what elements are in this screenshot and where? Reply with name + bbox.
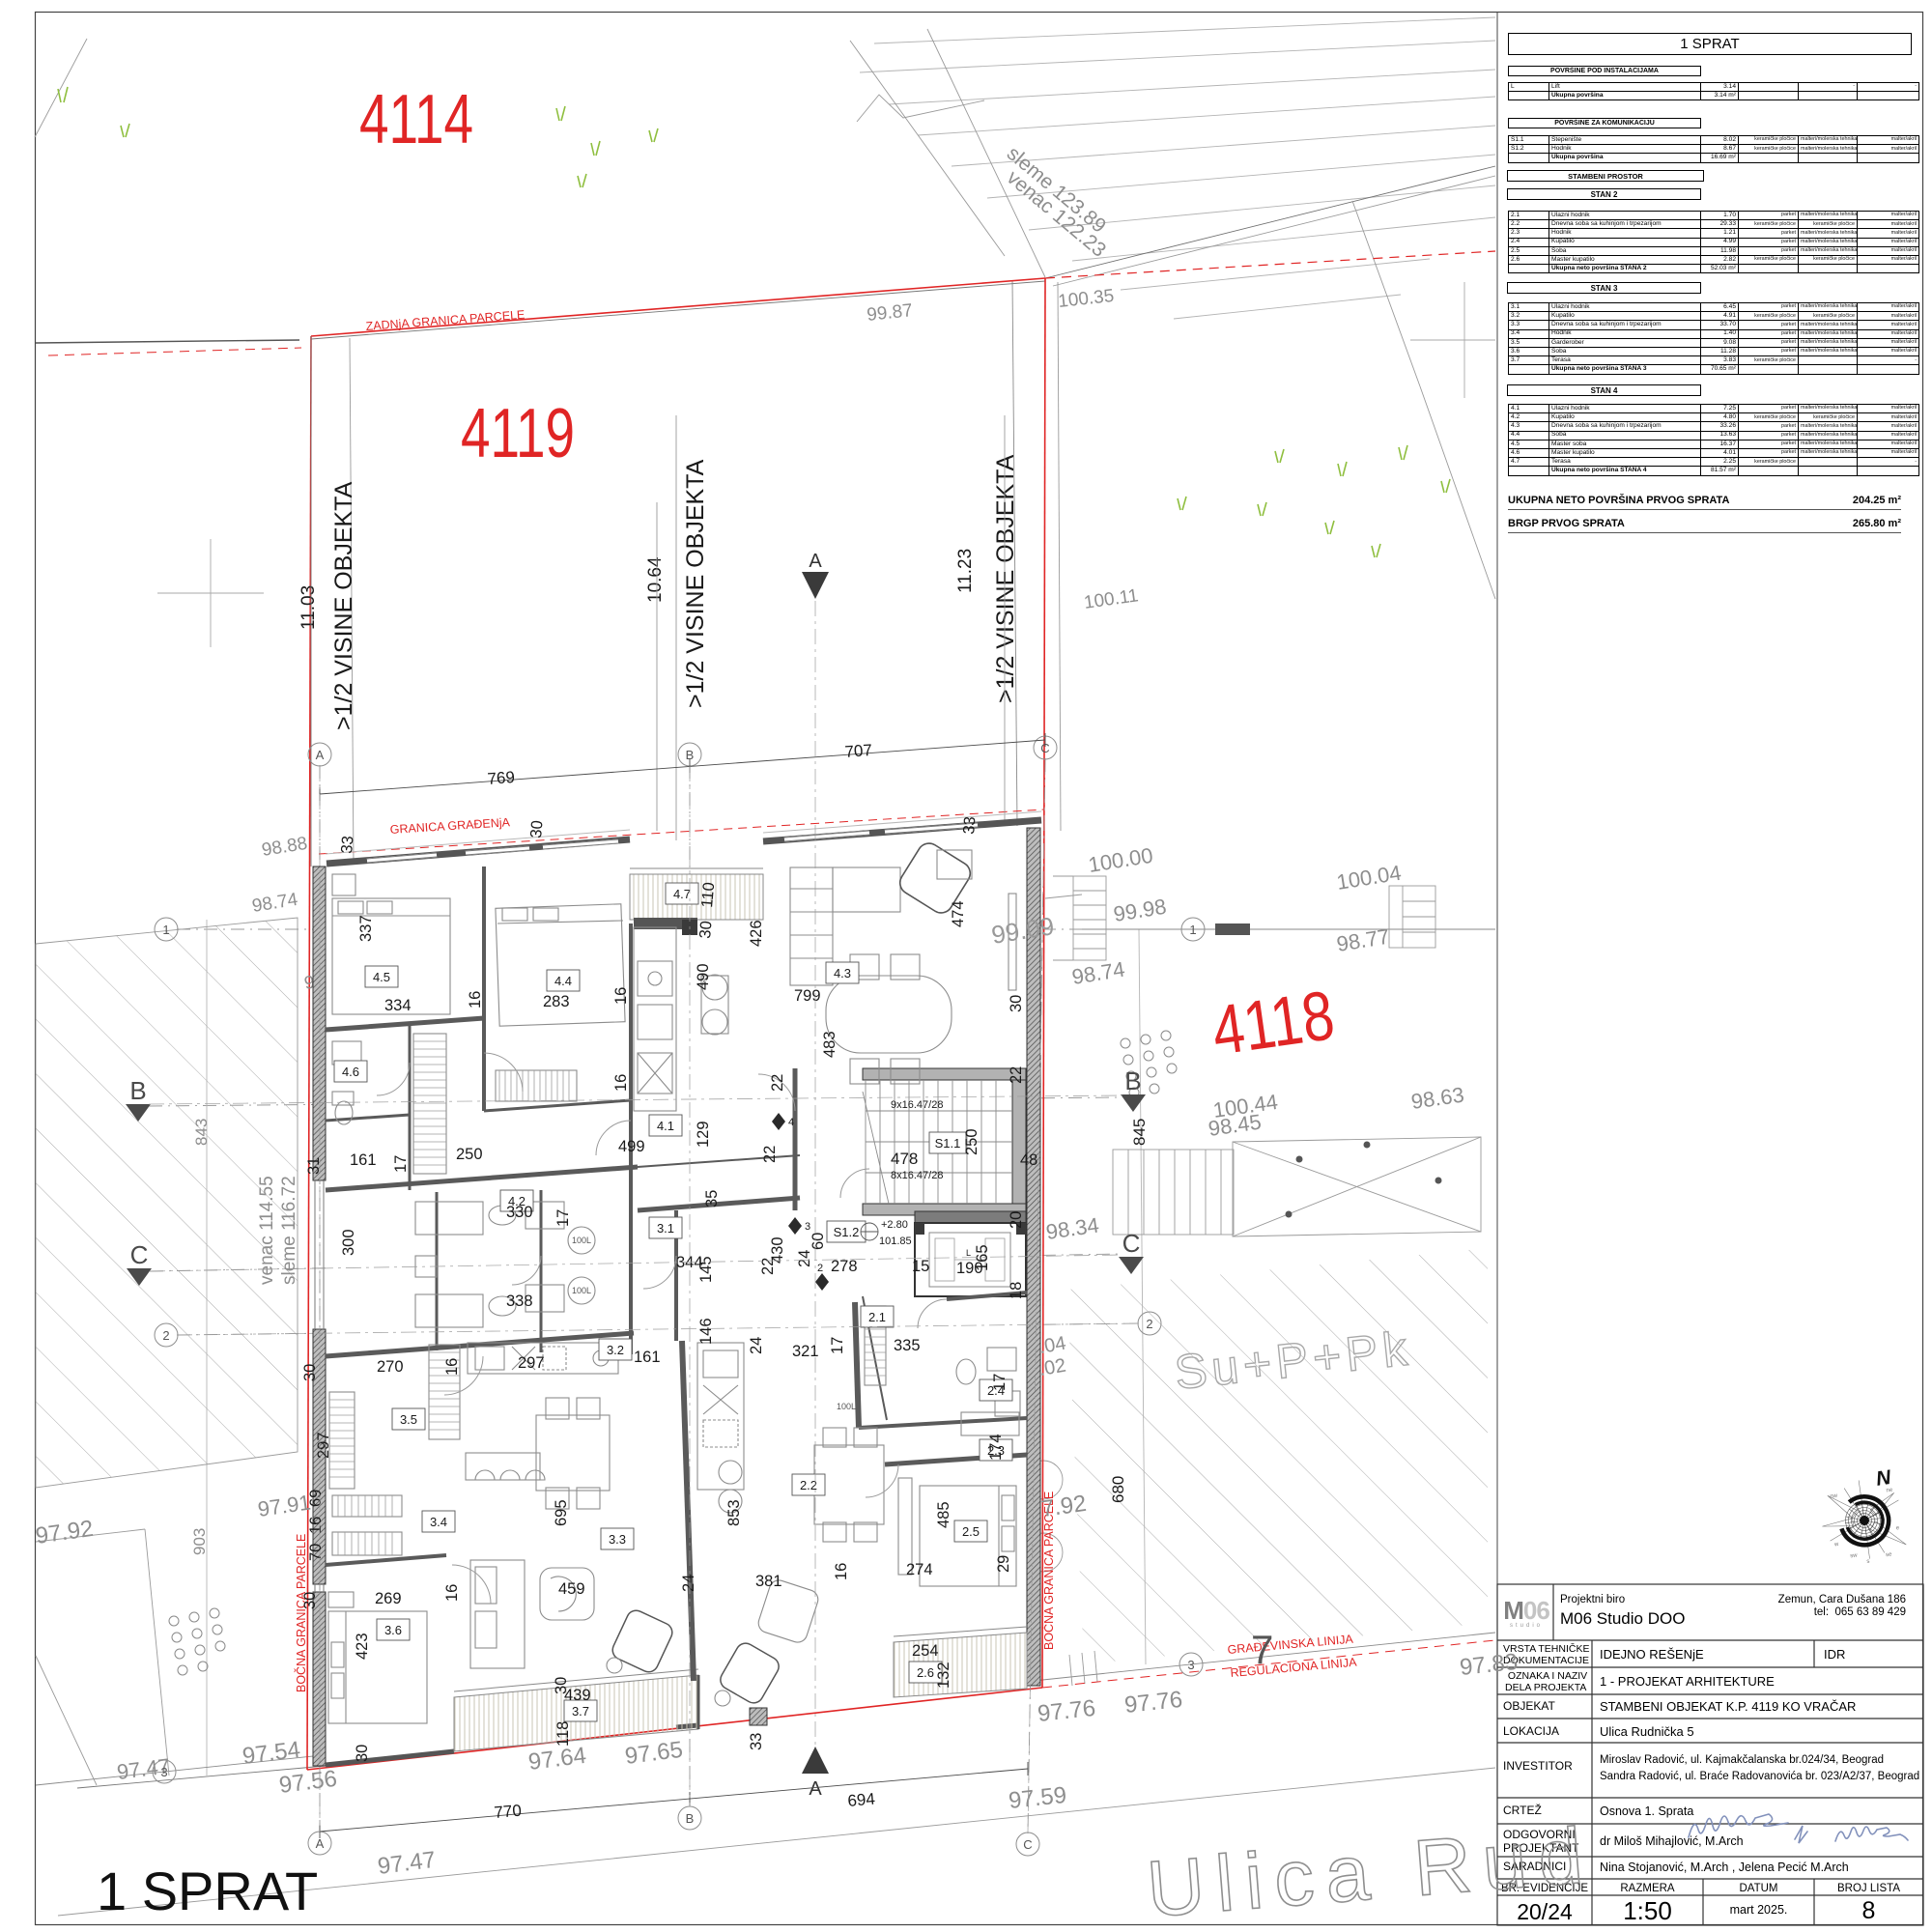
- svg-text:101.85: 101.85: [879, 1236, 912, 1247]
- svg-text:B: B: [1124, 1066, 1141, 1095]
- svg-text:3: 3: [160, 1765, 167, 1779]
- svg-text:3.7: 3.7: [572, 1704, 589, 1719]
- svg-text:490: 490: [695, 963, 712, 990]
- svg-text:321: 321: [792, 1343, 819, 1360]
- svg-text:10.64: 10.64: [645, 556, 666, 603]
- svg-text:16: 16: [612, 987, 630, 1005]
- svg-text:769: 769: [487, 768, 516, 788]
- svg-text:2.2: 2.2: [800, 1478, 817, 1492]
- svg-text:430: 430: [769, 1236, 786, 1264]
- svg-text:A: A: [316, 1836, 325, 1851]
- svg-text:17: 17: [991, 1374, 1009, 1391]
- svg-text:338: 338: [506, 1293, 533, 1310]
- svg-text:97.92: 97.92: [34, 1516, 95, 1549]
- svg-text:161: 161: [350, 1151, 377, 1169]
- svg-text:483: 483: [821, 1031, 838, 1058]
- svg-text:680: 680: [1109, 1476, 1127, 1503]
- svg-text:17: 17: [829, 1337, 846, 1354]
- svg-text:30: 30: [354, 1745, 371, 1762]
- svg-text:174: 174: [987, 1434, 1005, 1461]
- svg-text:S1.1: S1.1: [935, 1136, 961, 1151]
- svg-text:100L: 100L: [837, 1402, 856, 1411]
- svg-text:97.83: 97.83: [1459, 1649, 1520, 1681]
- svg-text:330: 330: [506, 1204, 533, 1221]
- svg-text:98.88: 98.88: [260, 834, 308, 861]
- svg-text:33: 33: [960, 815, 980, 835]
- svg-text:22: 22: [761, 1146, 779, 1163]
- svg-text:4.7: 4.7: [673, 887, 691, 901]
- svg-text:L: L: [966, 1248, 971, 1258]
- svg-text:99.87: 99.87: [866, 300, 913, 326]
- svg-text:B: B: [129, 1076, 146, 1105]
- svg-text:161: 161: [634, 1349, 661, 1366]
- svg-text:4118: 4118: [1207, 977, 1339, 1070]
- svg-text:48: 48: [1020, 1151, 1037, 1169]
- svg-text:17: 17: [392, 1155, 410, 1173]
- svg-text:S1.2: S1.2: [834, 1225, 860, 1239]
- svg-text:2.1: 2.1: [868, 1310, 886, 1324]
- svg-text:30: 30: [301, 1592, 319, 1609]
- svg-text:3.3: 3.3: [609, 1532, 626, 1547]
- svg-text:297: 297: [315, 1432, 332, 1459]
- svg-text:459: 459: [558, 1580, 585, 1598]
- svg-text:35: 35: [703, 1190, 721, 1207]
- svg-text:694: 694: [847, 1790, 876, 1810]
- svg-text:>1/2 VISINE OBJEKTA: >1/2 VISINE OBJEKTA: [330, 481, 357, 730]
- svg-text:100L: 100L: [572, 1236, 591, 1245]
- svg-text:30: 30: [696, 920, 716, 939]
- svg-text:423: 423: [354, 1633, 371, 1660]
- svg-text:30: 30: [553, 1677, 570, 1694]
- svg-text:9x16.47/28: 9x16.47/28: [891, 1099, 943, 1111]
- svg-text:499: 499: [618, 1138, 645, 1155]
- svg-text:4.1: 4.1: [657, 1119, 674, 1133]
- svg-text:+2.80: +2.80: [881, 1219, 908, 1231]
- svg-text:1: 1: [1189, 923, 1196, 937]
- svg-text:8x16.47/28: 8x16.47/28: [891, 1170, 943, 1181]
- svg-text:485: 485: [935, 1501, 952, 1528]
- svg-text:60: 60: [810, 1233, 827, 1250]
- svg-text:>1/2 VISINE OBJEKTA: >1/2 VISINE OBJEKTA: [682, 459, 709, 708]
- svg-text:2: 2: [817, 1263, 823, 1274]
- svg-text:1: 1: [162, 923, 169, 937]
- svg-text:20: 20: [1008, 1211, 1025, 1229]
- svg-text:30: 30: [1008, 995, 1025, 1012]
- svg-text:297: 297: [518, 1354, 545, 1372]
- svg-text:4119: 4119: [461, 395, 575, 472]
- svg-text:474: 474: [950, 900, 967, 927]
- svg-text:97.56: 97.56: [277, 1766, 338, 1799]
- svg-text:A: A: [809, 1778, 822, 1800]
- svg-text:4.3: 4.3: [834, 966, 851, 980]
- svg-text:3: 3: [805, 1221, 810, 1233]
- svg-text:11.03: 11.03: [298, 585, 319, 630]
- svg-text:C: C: [1023, 1837, 1032, 1852]
- svg-text:16: 16: [443, 1358, 461, 1376]
- svg-text:100.35: 100.35: [1057, 286, 1115, 312]
- svg-text:69: 69: [307, 1490, 325, 1507]
- svg-text:334: 334: [384, 997, 412, 1014]
- svg-text:2: 2: [162, 1328, 169, 1343]
- svg-text:165: 165: [974, 1244, 991, 1271]
- svg-text:2.6: 2.6: [917, 1665, 934, 1680]
- svg-text:REGULACIONA LINIJA: REGULACIONA LINIJA: [1230, 1656, 1358, 1680]
- svg-text:29: 29: [995, 1555, 1012, 1573]
- svg-text:2.5: 2.5: [962, 1524, 980, 1539]
- svg-text:843: 843: [192, 1119, 211, 1146]
- svg-text:100.04: 100.04: [1335, 861, 1403, 895]
- svg-text:24: 24: [680, 1575, 697, 1592]
- svg-text:3: 3: [1187, 1658, 1194, 1672]
- svg-text:16: 16: [307, 1517, 325, 1534]
- svg-text:33: 33: [748, 1733, 765, 1750]
- svg-text:>1/2 VISINE OBJEKTA: >1/2 VISINE OBJEKTA: [992, 454, 1019, 703]
- svg-text:22: 22: [1008, 1066, 1025, 1084]
- svg-text:2: 2: [1146, 1317, 1152, 1331]
- svg-text:15: 15: [912, 1258, 929, 1275]
- svg-text:17: 17: [554, 1209, 572, 1227]
- svg-text:254: 254: [912, 1642, 939, 1660]
- svg-text:300: 300: [340, 1229, 357, 1256]
- svg-text:337: 337: [357, 915, 375, 942]
- svg-text:4.4: 4.4: [554, 974, 572, 988]
- svg-text:24: 24: [796, 1250, 813, 1267]
- svg-text:30: 30: [527, 819, 547, 838]
- svg-text:4.5: 4.5: [373, 970, 390, 984]
- svg-text:7: 7: [1251, 1627, 1273, 1672]
- svg-text:18: 18: [1008, 1282, 1025, 1299]
- svg-text:97.47: 97.47: [376, 1847, 437, 1880]
- svg-text:A: A: [809, 551, 822, 572]
- svg-text:97.91: 97.91: [256, 1491, 312, 1521]
- svg-text:4114: 4114: [359, 81, 473, 158]
- svg-text:278: 278: [831, 1258, 858, 1275]
- svg-text:695: 695: [553, 1499, 570, 1526]
- svg-text:B: B: [686, 1811, 695, 1826]
- svg-text:99.98: 99.98: [1112, 895, 1168, 926]
- svg-text:venac 114.55: venac 114.55: [257, 1176, 277, 1285]
- svg-text:283: 283: [543, 993, 570, 1010]
- svg-text:16: 16: [612, 1074, 630, 1092]
- svg-text:129: 129: [695, 1121, 712, 1148]
- svg-text:250: 250: [963, 1128, 980, 1155]
- svg-text:3.1: 3.1: [657, 1221, 674, 1236]
- svg-text:4: 4: [788, 1117, 794, 1128]
- svg-text:770: 770: [494, 1802, 523, 1822]
- svg-text:3.2: 3.2: [607, 1343, 624, 1357]
- svg-text:GRANICA GRAĐENjA: GRANICA GRAĐENjA: [389, 815, 511, 837]
- svg-text:33: 33: [338, 835, 357, 854]
- svg-text:845: 845: [1130, 1119, 1149, 1146]
- svg-text:16: 16: [833, 1563, 850, 1580]
- svg-text:ZADNjA GRANICA PARCELE: ZADNjA GRANICA PARCELE: [365, 308, 526, 333]
- svg-text:C: C: [1122, 1229, 1141, 1258]
- svg-text:270: 270: [377, 1358, 404, 1376]
- svg-text:3.4: 3.4: [430, 1515, 447, 1529]
- svg-text:30: 30: [301, 1364, 319, 1381]
- svg-text:853: 853: [725, 1499, 743, 1526]
- svg-text:426: 426: [748, 920, 765, 947]
- svg-text:250: 250: [456, 1146, 483, 1163]
- svg-text:BOČNA GRANICA PARCELE: BOČNA GRANICA PARCELE: [294, 1534, 308, 1692]
- svg-text:381: 381: [755, 1573, 782, 1590]
- svg-text:269: 269: [375, 1590, 402, 1607]
- svg-text:C: C: [130, 1240, 149, 1269]
- svg-text:97.76: 97.76: [1037, 1695, 1097, 1727]
- svg-text:100.11: 100.11: [1083, 585, 1140, 613]
- svg-text:70: 70: [307, 1544, 325, 1561]
- svg-text:Ulica Rud: Ulica Rud: [1144, 1811, 1597, 1932]
- svg-text:274: 274: [906, 1561, 933, 1578]
- svg-text:100.00: 100.00: [1087, 843, 1154, 877]
- svg-text:97.65: 97.65: [623, 1737, 684, 1770]
- svg-text:11.23: 11.23: [955, 549, 976, 593]
- svg-text:16: 16: [443, 1584, 461, 1602]
- svg-text:110: 110: [698, 882, 718, 909]
- svg-text:24: 24: [748, 1337, 765, 1354]
- svg-text:97.59: 97.59: [1008, 1782, 1068, 1814]
- svg-text:799: 799: [794, 987, 821, 1005]
- svg-text:16: 16: [467, 991, 484, 1009]
- svg-text:707: 707: [844, 741, 873, 761]
- svg-text:335: 335: [894, 1337, 921, 1354]
- svg-text:22: 22: [769, 1074, 786, 1092]
- svg-text:146: 146: [697, 1318, 715, 1345]
- svg-text:100L: 100L: [572, 1286, 591, 1295]
- svg-text:3.6: 3.6: [384, 1623, 402, 1637]
- svg-text:98.63: 98.63: [1409, 1083, 1465, 1114]
- svg-text:132: 132: [935, 1662, 952, 1689]
- svg-text:3.5: 3.5: [400, 1412, 417, 1427]
- svg-text:4.6: 4.6: [342, 1065, 359, 1079]
- svg-text:98.74: 98.74: [250, 890, 299, 917]
- svg-text:98.34: 98.34: [1044, 1213, 1100, 1244]
- svg-text:A: A: [316, 748, 325, 762]
- svg-text:97.76: 97.76: [1123, 1687, 1184, 1719]
- svg-text:478: 478: [891, 1150, 918, 1168]
- svg-text:97.54: 97.54: [241, 1737, 301, 1770]
- svg-text:903: 903: [190, 1528, 209, 1555]
- svg-text:118: 118: [554, 1721, 572, 1747]
- svg-text:98.74: 98.74: [1070, 957, 1126, 989]
